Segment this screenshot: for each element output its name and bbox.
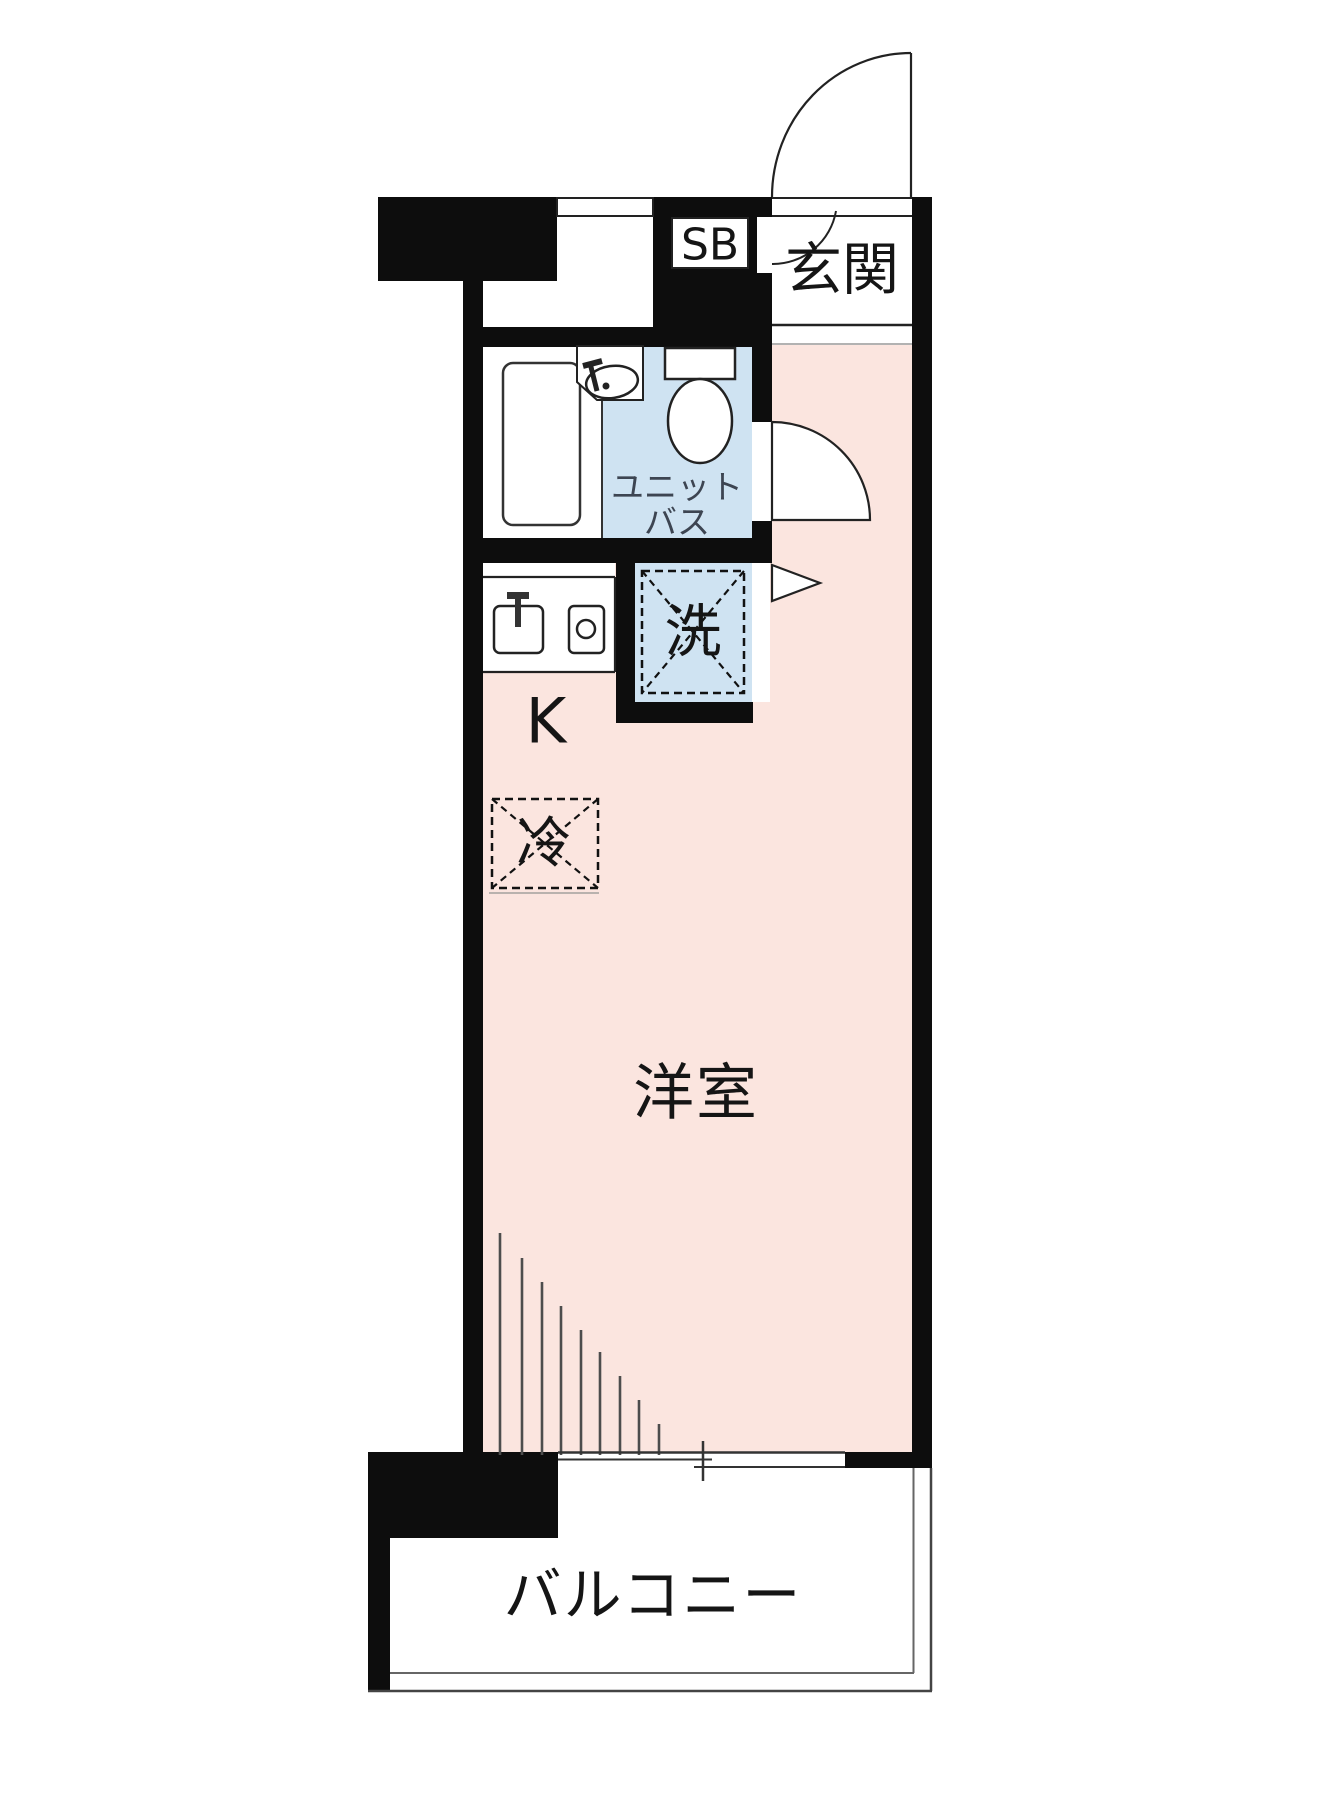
kitchen-faucet-bar-icon <box>507 592 529 599</box>
unit-bath-label-line2: バス <box>644 503 710 542</box>
wall-bath-top <box>483 327 653 347</box>
small-window-icon <box>557 198 653 216</box>
washing-machine-label: 洗 <box>665 599 722 665</box>
laundry-door-opening <box>752 563 770 702</box>
wall-bottom-left-block <box>368 1452 558 1538</box>
wall-bath-bottom <box>483 538 772 563</box>
kitchen-label: K <box>526 685 568 758</box>
wall-laundry-bottom <box>616 702 753 723</box>
bath-door-opening <box>752 422 772 521</box>
wall-bath-right-lower <box>752 520 772 538</box>
wall-right <box>912 197 932 1468</box>
entrance-label: 玄関 <box>785 237 899 303</box>
wall-window-right <box>845 1452 932 1468</box>
stove-burner-icon <box>577 620 595 638</box>
bathtub-icon <box>503 363 580 525</box>
wall-top-left-block <box>378 197 557 281</box>
toilet-bowl-icon <box>668 379 732 463</box>
wall-laundry-left <box>616 563 635 702</box>
floor-plan-drawing: SB 玄関 ユニット バス 洗 K 冷 洋室 バルコニー <box>0 0 1320 1800</box>
balcony-label: バルコニー <box>504 1561 803 1629</box>
shoe-box-label: SB <box>681 220 739 271</box>
entry-wall-notch <box>757 217 772 273</box>
wall-bath-right-upper <box>752 347 772 423</box>
wall-balcony-left <box>368 1538 390 1692</box>
wall-left <box>463 281 483 1452</box>
kitchen-faucet-stem-icon <box>515 598 521 627</box>
kitchen-area <box>483 563 615 672</box>
floor-plan: SB 玄関 ユニット バス 洗 K 冷 洋室 バルコニー <box>0 0 1320 1800</box>
unit-bath-label-line1: ユニット <box>611 468 743 507</box>
western-room-label: 洋室 <box>633 1058 759 1129</box>
washbasin-drain-icon <box>603 383 610 390</box>
toilet-tank-icon <box>665 348 735 379</box>
refrigerator-label: 冷 <box>516 811 571 875</box>
